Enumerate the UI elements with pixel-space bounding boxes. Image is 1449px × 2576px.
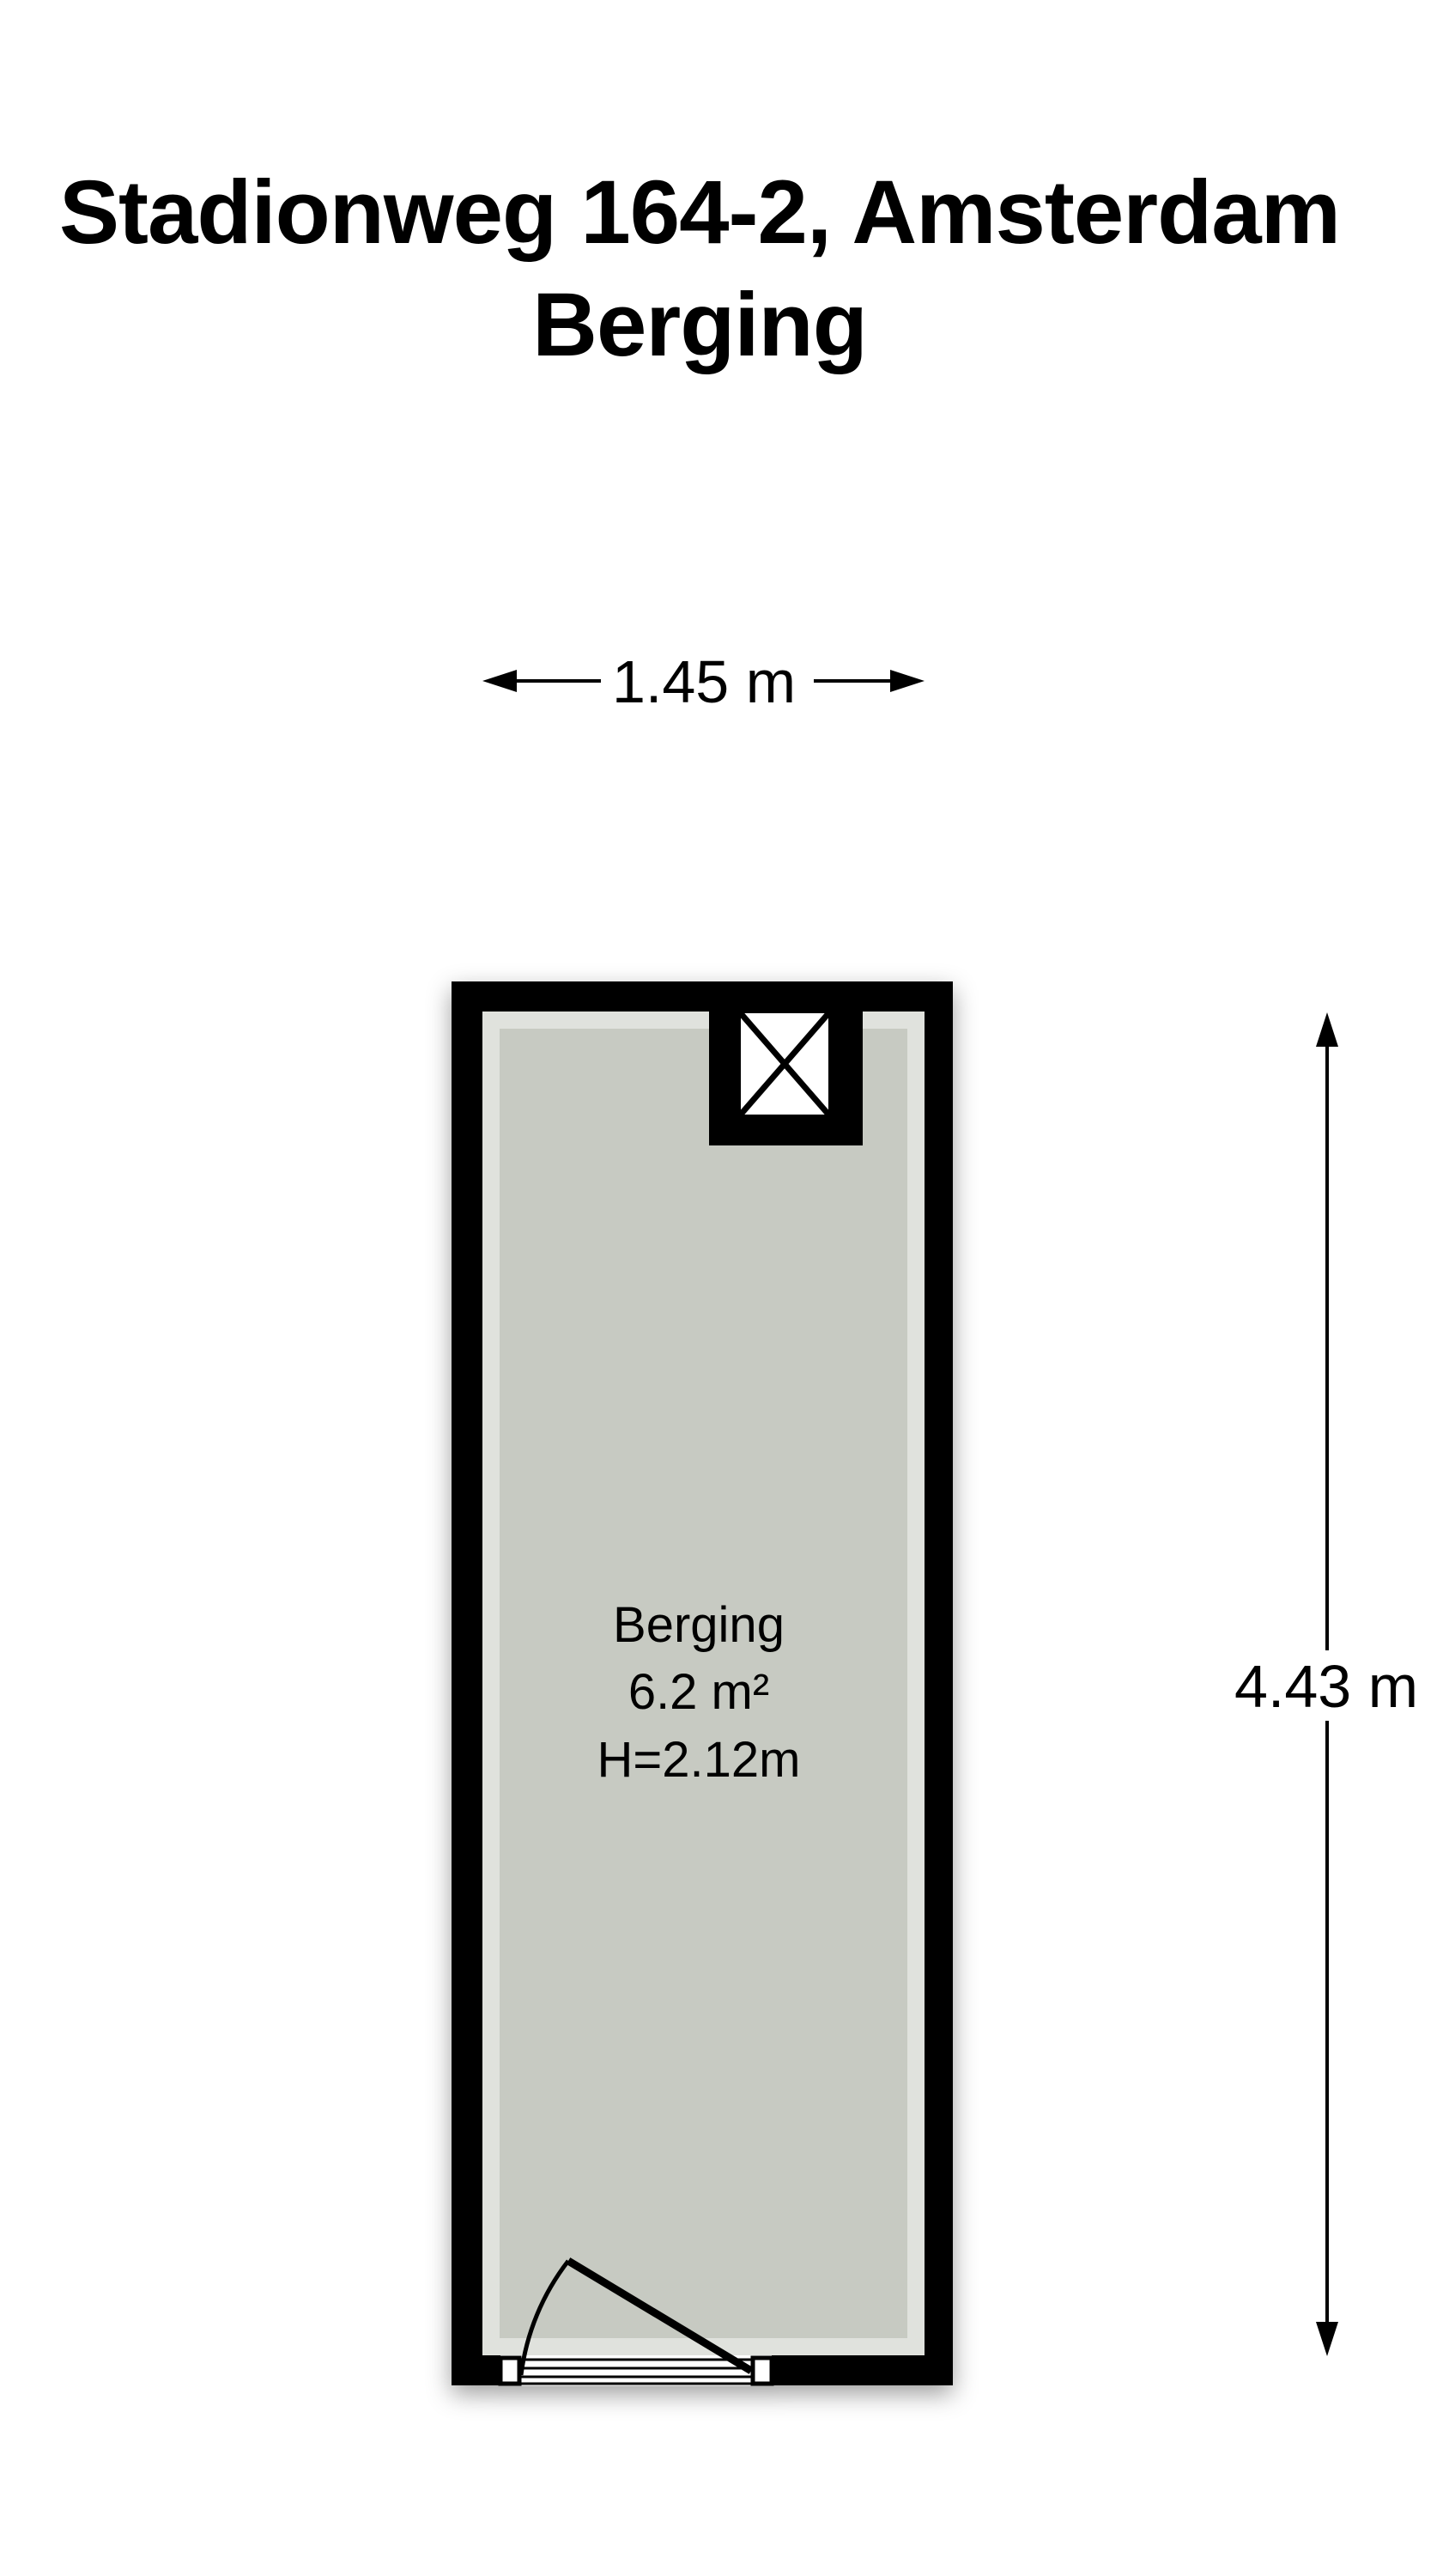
height-dimension: 4.43 m xyxy=(1234,1012,1418,2356)
height-dimension-label: 4.43 m xyxy=(1234,1653,1418,1720)
width-dimension-label: 1.45 m xyxy=(612,648,796,715)
width-dimension: 1.45 m xyxy=(482,648,925,715)
height-dim-top-arrow-icon xyxy=(1316,1012,1338,1047)
width-dim-right-arrow-icon xyxy=(890,670,925,692)
page-title-line2: Berging xyxy=(532,275,867,375)
door-jamb-right xyxy=(753,2358,772,2384)
floorplan: Berging 6.2 m² H=2.12m xyxy=(452,981,953,2386)
floorplan-canvas: Stadionweg 164-2, Amsterdam Berging 1.45… xyxy=(0,0,1449,2576)
room-label-area: 6.2 m² xyxy=(628,1664,769,1720)
room-label-name: Berging xyxy=(613,1597,785,1653)
width-dim-left-arrow-icon xyxy=(482,670,517,692)
height-dim-bottom-arrow-icon xyxy=(1316,2322,1338,2356)
page-title-line1: Stadionweg 164-2, Amsterdam xyxy=(59,162,1340,263)
door-jamb-left xyxy=(500,2358,519,2384)
room-label-ceiling-height: H=2.12m xyxy=(597,1732,801,1788)
